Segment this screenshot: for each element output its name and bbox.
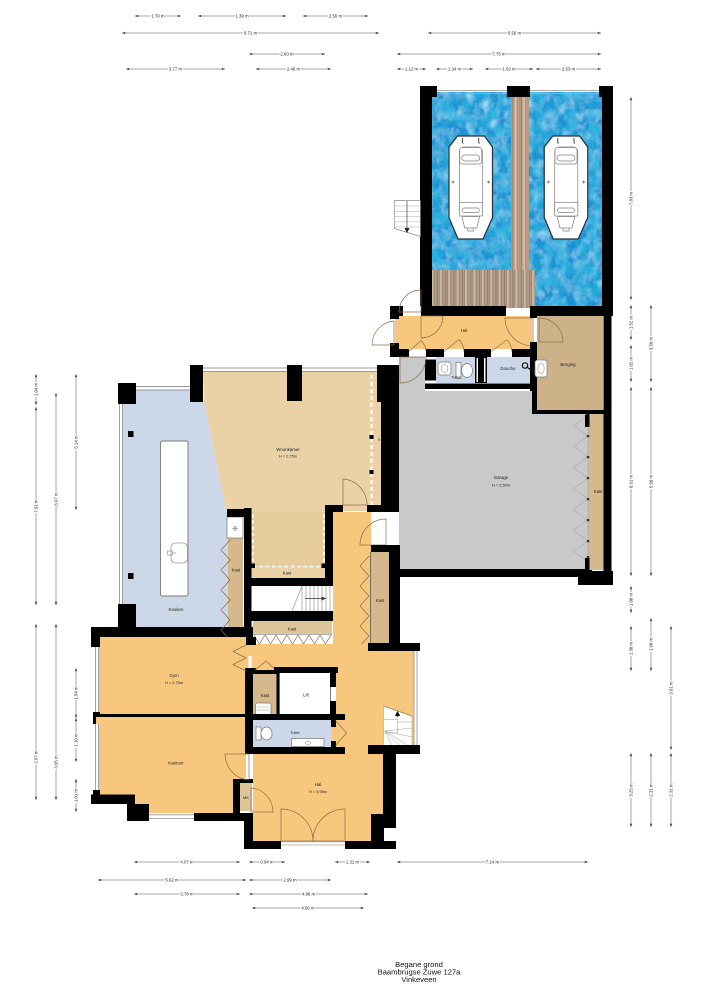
svg-text:2.99 m: 2.99 m <box>283 877 297 882</box>
svg-text:2.97 m: 2.97 m <box>33 750 38 764</box>
svg-text:Kast: Kast <box>376 598 385 603</box>
svg-text:1.70 m: 1.70 m <box>151 13 165 18</box>
svg-text:6.56 m: 6.56 m <box>508 30 522 35</box>
svg-text:Toilet: Toilet <box>451 375 461 380</box>
svg-text:3.78 m: 3.78 m <box>180 891 194 896</box>
svg-text:Gym: Gym <box>169 673 179 678</box>
svg-text:0.94 m: 0.94 m <box>260 859 274 864</box>
svg-text:3.56 m: 3.56 m <box>648 337 653 351</box>
svg-text:Kast: Kast <box>594 489 603 494</box>
svg-text:5.96 m: 5.96 m <box>648 475 653 489</box>
svg-text:1.02 m: 1.02 m <box>502 66 516 71</box>
svg-text:Vinkeveen: Vinkeveen <box>401 975 436 984</box>
svg-text:Douche: Douche <box>500 366 516 371</box>
svg-text:1.10 m: 1.10 m <box>73 733 78 747</box>
svg-text:Keuken: Keuken <box>169 607 184 612</box>
svg-text:4.96 m: 4.96 m <box>302 891 316 896</box>
svg-text:1.00 m: 1.00 m <box>628 593 633 607</box>
svg-text:1.30 m: 1.30 m <box>628 642 633 656</box>
svg-text:5.62 m: 5.62 m <box>165 877 179 882</box>
svg-text:6.91 m: 6.91 m <box>628 475 633 489</box>
svg-text:H = 5.95m: H = 5.95m <box>309 789 327 794</box>
svg-text:Kast: Kast <box>261 693 270 698</box>
svg-text:H = 2.75m: H = 2.75m <box>165 680 183 685</box>
svg-text:MK: MK <box>243 795 249 800</box>
svg-text:1.04 m: 1.04 m <box>33 383 38 397</box>
svg-text:Berging: Berging <box>560 362 576 367</box>
svg-text:Hal: Hal <box>461 328 468 333</box>
svg-text:Kast: Kast <box>232 568 241 573</box>
svg-text:2.53 m: 2.53 m <box>562 66 576 71</box>
svg-text:Lift: Lift <box>303 693 309 698</box>
svg-text:2.31 m: 2.31 m <box>668 783 673 797</box>
svg-text:2.60 m: 2.60 m <box>280 51 294 56</box>
svg-text:Woonkamer: Woonkamer <box>276 447 300 452</box>
svg-text:Hal: Hal <box>315 782 322 787</box>
svg-text:7.14 m: 7.14 m <box>486 859 500 864</box>
svg-text:1.54 m: 1.54 m <box>73 686 78 700</box>
svg-text:Kantoor: Kantoor <box>168 761 184 766</box>
svg-text:7.75 m: 7.75 m <box>492 51 506 56</box>
svg-text:3.77 m: 3.77 m <box>169 66 183 71</box>
svg-text:4.56 m: 4.56 m <box>301 905 315 910</box>
svg-text:H = 2.50m: H = 2.50m <box>492 483 510 488</box>
svg-text:❉: ❉ <box>232 525 238 533</box>
svg-text:Kast: Kast <box>288 627 297 632</box>
svg-text:1.52 m: 1.52 m <box>628 316 633 330</box>
svg-text:7.83 m: 7.83 m <box>628 192 633 206</box>
svg-text:Kast: Kast <box>283 571 292 576</box>
svg-text:1.39 m: 1.39 m <box>235 13 249 18</box>
svg-text:2.56 m: 2.56 m <box>329 13 343 18</box>
svg-text:9.71 m: 9.71 m <box>244 30 258 35</box>
svg-text:1.98 m: 1.98 m <box>648 638 653 652</box>
svg-text:4.07 m: 4.07 m <box>180 859 194 864</box>
svg-text:H = 2.75m: H = 2.75m <box>279 454 297 459</box>
svg-text:3.65 m: 3.65 m <box>53 755 58 769</box>
svg-text:Garage: Garage <box>494 475 509 480</box>
svg-text:3.61 m: 3.61 m <box>668 681 673 695</box>
svg-text:Toilet: Toilet <box>290 730 300 735</box>
svg-text:1.12 m: 1.12 m <box>405 66 419 71</box>
svg-text:1.02 m: 1.02 m <box>628 357 633 371</box>
svg-text:1.01 m: 1.01 m <box>73 789 78 803</box>
svg-text:3.25 m: 3.25 m <box>628 783 633 797</box>
svg-text:5.14 m: 5.14 m <box>73 435 78 449</box>
svg-text:6.97 m: 6.97 m <box>53 492 58 506</box>
svg-text:1.34 m: 1.34 m <box>448 66 462 71</box>
svg-text:2.31 m: 2.31 m <box>648 783 653 797</box>
svg-text:7.61 m: 7.61 m <box>33 499 38 513</box>
svg-text:2.46 m: 2.46 m <box>287 66 301 71</box>
svg-text:1.31 m: 1.31 m <box>346 859 360 864</box>
